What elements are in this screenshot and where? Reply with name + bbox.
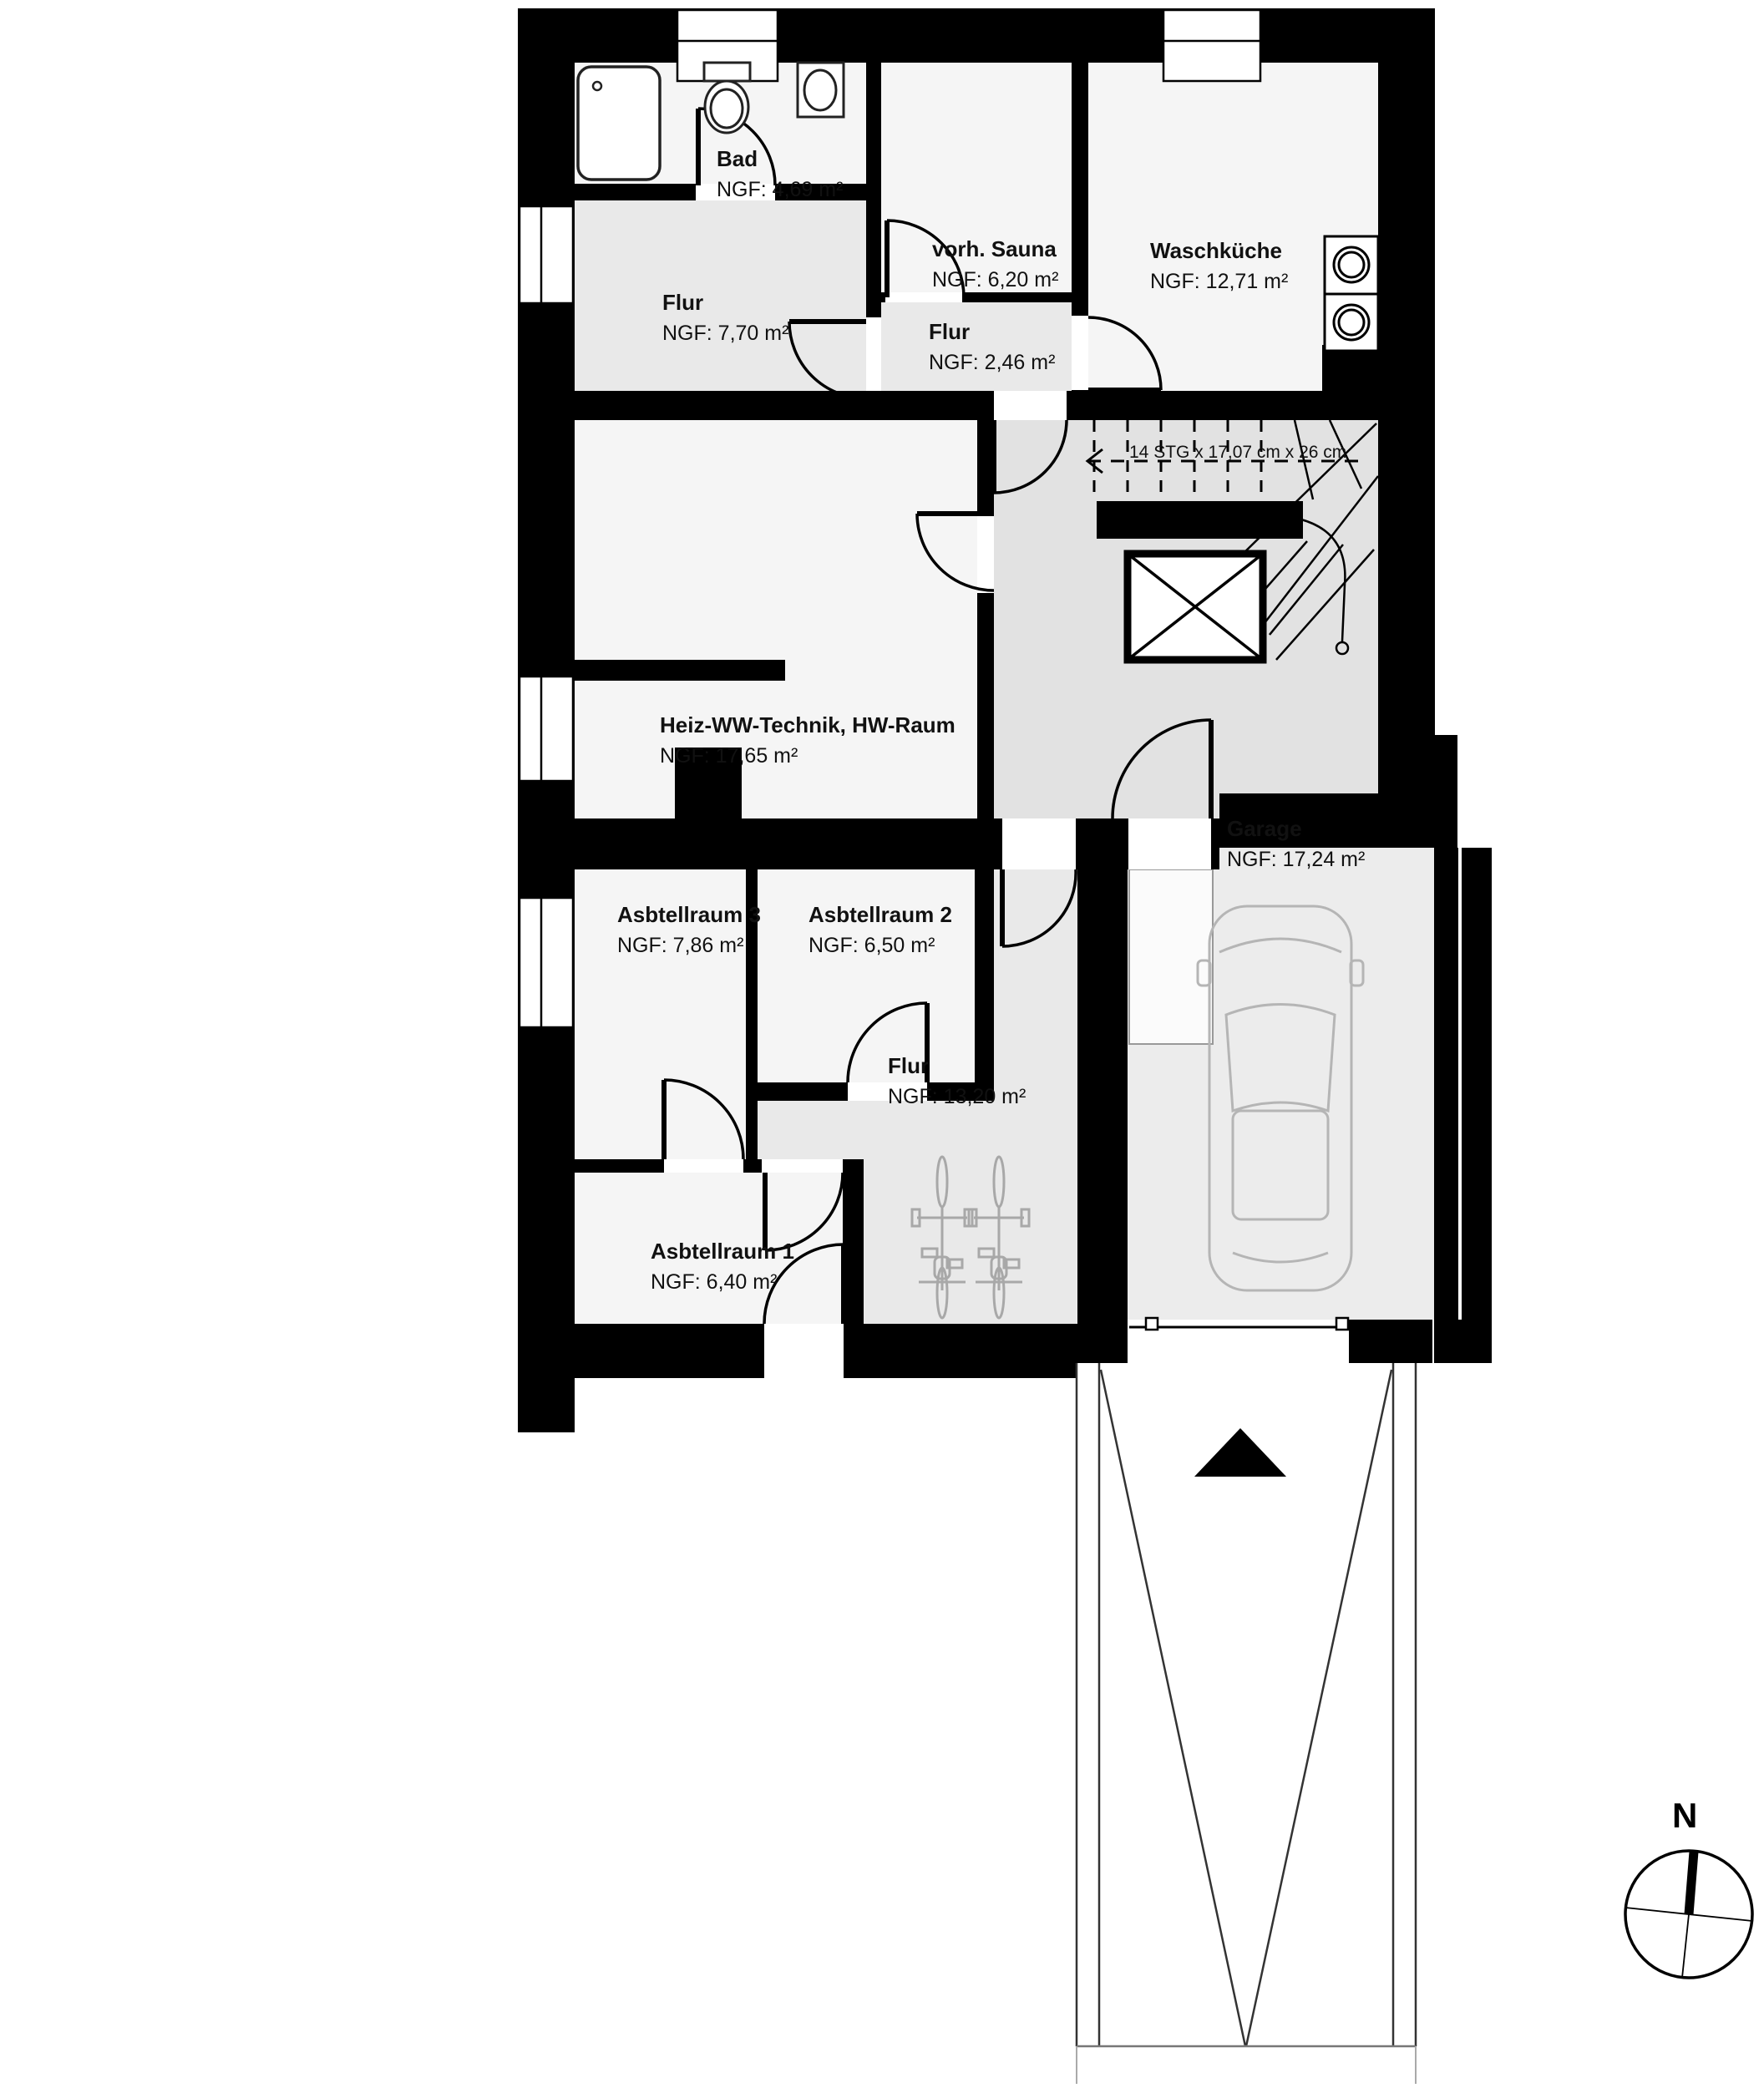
sink xyxy=(798,63,844,117)
room-name: Asbtellraum 1 xyxy=(651,1236,794,1267)
room-area: NGF: 7,70 m² xyxy=(662,318,788,349)
room-area: NGF: 6,50 m² xyxy=(808,930,952,961)
room-name: Flur xyxy=(929,317,1055,347)
room-label-flur-246: Flur NGF: 2,46 m² xyxy=(929,317,1055,378)
room-label-heiz: Heiz-WW-Technik, HW-Raum NGF: 17,65 m² xyxy=(660,710,955,772)
floor-plan: Bad NGF: 4,69 m² vorh. Sauna NGF: 6,20 m… xyxy=(0,0,1764,2088)
driveway-arrow-icon xyxy=(1194,1428,1286,1477)
stair-note: 14 STG x 17,07 cm x 26 cm xyxy=(1129,443,1346,463)
room-name: Flur xyxy=(888,1051,1026,1082)
north-compass-icon xyxy=(1625,1851,1752,1978)
shaft xyxy=(1128,554,1263,660)
room-area: NGF: 7,86 m² xyxy=(617,930,761,961)
room-label-asbtellraum-3: Asbtellraum 3 NGF: 7,86 m² xyxy=(617,900,761,961)
room-name: Bad xyxy=(717,144,843,175)
room-area: NGF: 4,69 m² xyxy=(717,175,843,205)
room-name: vorh. Sauna xyxy=(932,234,1058,265)
garage-door xyxy=(1129,1318,1349,1330)
room-label-flur-770: Flur NGF: 7,70 m² xyxy=(662,287,788,349)
room-area: NGF: 12,71 m² xyxy=(1150,266,1288,297)
room-area: NGF: 2,46 m² xyxy=(929,347,1055,378)
room-area: NGF: 17,65 m² xyxy=(660,741,955,772)
room-name: Asbtellraum 3 xyxy=(617,900,761,930)
room-name: Heiz-WW-Technik, HW-Raum xyxy=(660,710,955,741)
room-label-flur-1320: Flur NGF: 13,20 m² xyxy=(888,1051,1026,1112)
room-label-bad: Bad NGF: 4,69 m² xyxy=(717,144,843,205)
room-name: Garage xyxy=(1227,813,1365,844)
room-label-waschkueche: Waschküche NGF: 12,71 m² xyxy=(1150,236,1288,297)
room-label-garage: Garage NGF: 17,24 m² xyxy=(1227,813,1365,875)
room-label-asbtellraum-1: Asbtellraum 1 NGF: 6,40 m² xyxy=(651,1236,794,1298)
north-label: N xyxy=(1672,1796,1697,1836)
room-area: NGF: 6,20 m² xyxy=(932,265,1058,296)
room-label-asbtellraum-2: Asbtellraum 2 NGF: 6,50 m² xyxy=(808,900,952,961)
room-name: Asbtellraum 2 xyxy=(808,900,952,930)
stair-landing-edge xyxy=(1097,501,1303,539)
room-area: NGF: 13,20 m² xyxy=(888,1082,1026,1112)
washer-dryer-stack xyxy=(1325,236,1378,351)
bathtub xyxy=(578,67,660,180)
room-name: Waschküche xyxy=(1150,236,1288,266)
room-name: Flur xyxy=(662,287,788,318)
toilet xyxy=(704,63,750,133)
room-label-sauna: vorh. Sauna NGF: 6,20 m² xyxy=(932,234,1058,296)
driveway xyxy=(1077,1363,1416,2084)
floor-plan-drawing xyxy=(0,0,1764,2088)
room-area: NGF: 6,40 m² xyxy=(651,1267,794,1298)
room-area: NGF: 17,24 m² xyxy=(1227,844,1365,875)
